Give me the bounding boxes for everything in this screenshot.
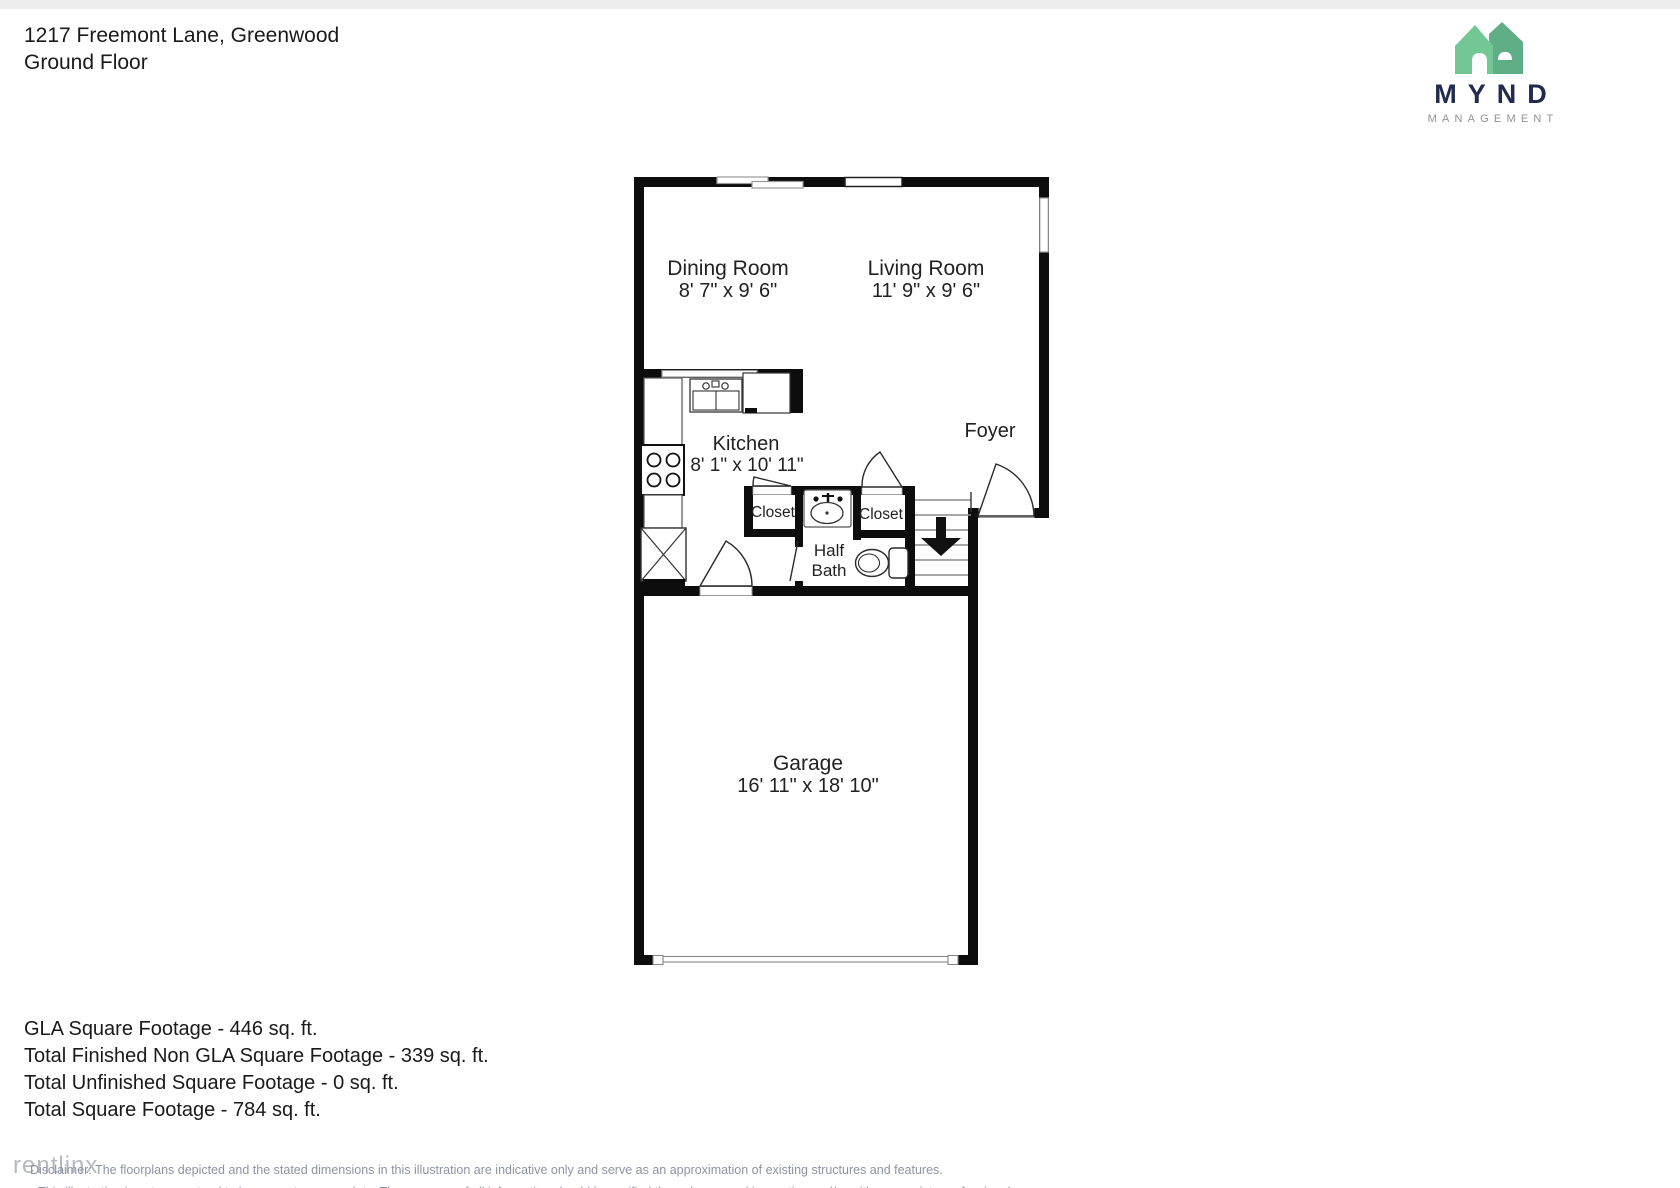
non-gla-square-footage: Total Finished Non GLA Square Footage - … (24, 1043, 489, 1070)
hall-door-swing (700, 541, 752, 586)
unfinished-square-footage: Total Unfinished Square Footage - 0 sq. … (24, 1070, 489, 1097)
wall-counter-right (790, 369, 803, 413)
window-right-foyer (1040, 198, 1049, 252)
closet-right-door-swing (862, 452, 902, 487)
fridge-icon (641, 528, 686, 586)
wall-section-bottom (634, 586, 978, 596)
closet-left-label: Closet (751, 504, 796, 521)
wall-garage-bottom-left (634, 955, 654, 965)
counter-below-stove (644, 495, 682, 528)
front-door-swing (978, 464, 1034, 516)
logo-title-text: MYND (1434, 79, 1558, 109)
closet-left-door-swing (753, 477, 791, 486)
kitchen-label: Kitchen (713, 433, 780, 455)
window-top-3 (845, 178, 902, 187)
toilet-icon (856, 548, 909, 578)
garage-door-jamb-left (653, 956, 663, 965)
opening-closetL-door (753, 487, 791, 495)
opening-hall-door (700, 587, 752, 596)
logo-house-dark-icon (1489, 22, 1523, 74)
wall-bath-stairs-divider (905, 486, 915, 595)
kitchen-fixtures (641, 373, 790, 586)
counter-right-nub (745, 408, 757, 413)
half-bath-label-2: Bath (812, 561, 847, 580)
window-top-2 (752, 182, 803, 189)
garage-label: Garage (773, 752, 843, 775)
kitchen-sink-icon (690, 379, 742, 412)
wall-garage-right (968, 508, 978, 965)
stove-icon (641, 445, 684, 495)
living-room-label: Living Room (868, 257, 985, 280)
disclaimer-line-1: Disclaimer: The floorplans depicted and … (30, 1163, 943, 1177)
wall-garage-bottom-right (958, 955, 978, 965)
closet-right-label: Closet (859, 506, 904, 523)
living-room-dims: 11' 9" x 9' 6" (872, 280, 980, 302)
wall-closetL-bottom (744, 529, 803, 537)
garage-door-jamb-right (948, 956, 958, 965)
garage-door-band (663, 957, 948, 963)
foyer-label: Foyer (964, 420, 1015, 442)
stairs-down-arrow-icon (921, 517, 961, 556)
mynd-logo: MYND MANAGEMENT (1428, 22, 1559, 125)
counter-right (743, 373, 790, 413)
total-square-footage: Total Square Footage - 784 sq. ft. (24, 1097, 489, 1124)
gla-square-footage: GLA Square Footage - 446 sq. ft. (24, 1016, 489, 1043)
wall-bath-left-upper-nub (795, 537, 803, 547)
counter-upper-left (644, 378, 682, 445)
stairs (915, 492, 971, 575)
dining-room-dims: 8' 7" x 9' 6" (679, 280, 778, 302)
dining-room-label: Dining Room (667, 257, 788, 280)
floor-plan: MYND MANAGEMENT (0, 0, 1680, 1188)
garage-dims: 16' 11" x 18' 10" (737, 775, 879, 797)
logo-subtitle-text: MANAGEMENT (1428, 113, 1559, 125)
half-bath-label-1: Half (814, 541, 845, 560)
vanity-sink-icon (804, 490, 851, 527)
garage-door (653, 956, 958, 965)
wall-top (634, 177, 1049, 187)
square-footage-summary: GLA Square Footage - 446 sq. ft. Total F… (24, 1016, 489, 1124)
kitchen-dims: 8' 1" x 10' 11" (690, 455, 803, 476)
